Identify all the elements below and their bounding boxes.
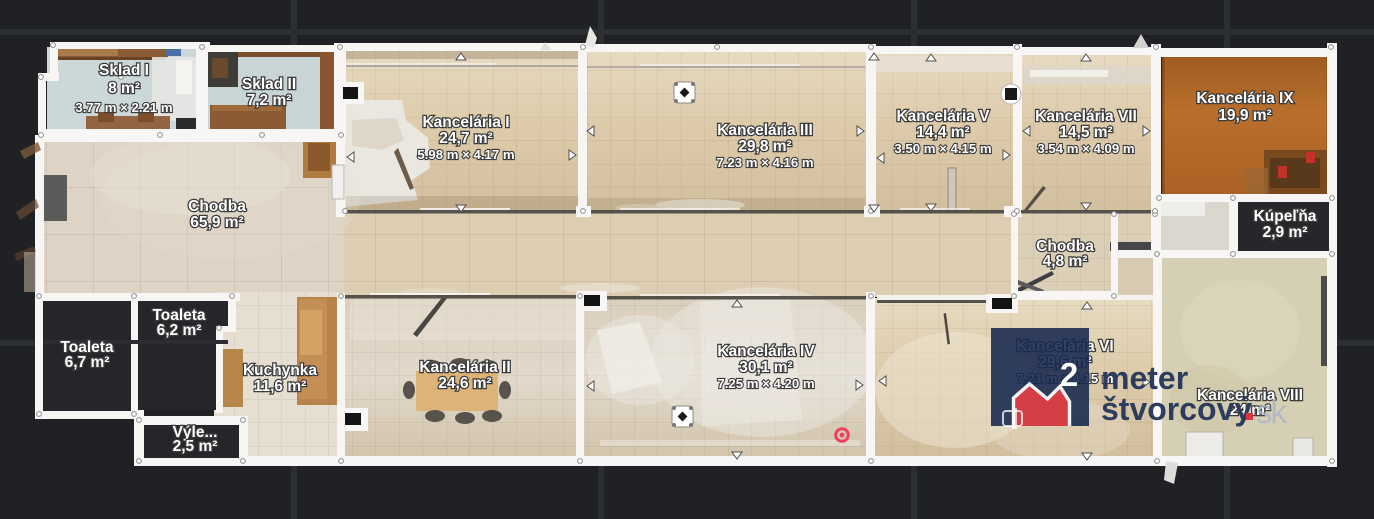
svg-text:11,6 m²: 11,6 m² (254, 378, 307, 395)
svg-text:Sklad II: Sklad II (242, 76, 296, 93)
svg-text:Chodba: Chodba (188, 198, 246, 215)
svg-text:Kancelária IX: Kancelária IX (1196, 90, 1294, 107)
svg-text:2,9 m²: 2,9 m² (1263, 224, 1308, 241)
svg-text:65,9 m²: 65,9 m² (190, 214, 243, 231)
svg-text:4,8 m²: 4,8 m² (1043, 253, 1088, 270)
svg-text:Kúpeľňa: Kúpeľňa (1254, 208, 1317, 225)
svg-text:Kancelária III: Kancelária III (717, 122, 813, 139)
svg-text:24,7 m²: 24,7 m² (439, 130, 492, 147)
svg-text:2,5 m²: 2,5 m² (173, 438, 218, 455)
svg-text:6,7 m²: 6,7 m² (65, 354, 110, 371)
svg-text:Kancelária I: Kancelária I (422, 114, 509, 131)
svg-text:Kuchynka: Kuchynka (243, 362, 317, 379)
svg-text:3.77 m × 2.21 m: 3.77 m × 2.21 m (75, 100, 172, 115)
svg-text:5.98 m × 4.17 m: 5.98 m × 4.17 m (417, 147, 514, 162)
svg-text:29,8 m²: 29,8 m² (738, 138, 791, 155)
svg-text:30,1 m²: 30,1 m² (739, 359, 792, 376)
svg-text:štvorcový: štvorcový (1101, 391, 1252, 427)
svg-text:14,5 m²: 14,5 m² (1059, 124, 1112, 141)
svg-text:24,6 m²: 24,6 m² (438, 375, 491, 392)
svg-text:6,2 m²: 6,2 m² (157, 322, 202, 339)
svg-text:Kancelária II: Kancelária II (419, 359, 510, 376)
svg-text:Kancelária IV: Kancelária IV (717, 343, 815, 360)
svg-text:Sklad I: Sklad I (99, 62, 149, 79)
svg-text:7,2 m²: 7,2 m² (247, 92, 292, 109)
svg-text:Kancelária V: Kancelária V (896, 108, 990, 125)
svg-text:Kancelária VII: Kancelária VII (1035, 108, 1137, 125)
svg-text:sk: sk (1256, 393, 1288, 430)
svg-text:7.23 m × 4.16 m: 7.23 m × 4.16 m (716, 155, 813, 170)
svg-text:7.25 m × 4.20 m: 7.25 m × 4.20 m (717, 376, 814, 391)
svg-text:2: 2 (1060, 356, 1078, 393)
svg-text:14,4 m²: 14,4 m² (916, 124, 969, 141)
svg-text:8 m²: 8 m² (108, 80, 140, 97)
svg-text:3.54 m × 4.09 m: 3.54 m × 4.09 m (1037, 141, 1134, 156)
svg-text:3.50 m × 4.15 m: 3.50 m × 4.15 m (894, 141, 991, 156)
svg-text:19,9 m²: 19,9 m² (1218, 107, 1271, 124)
